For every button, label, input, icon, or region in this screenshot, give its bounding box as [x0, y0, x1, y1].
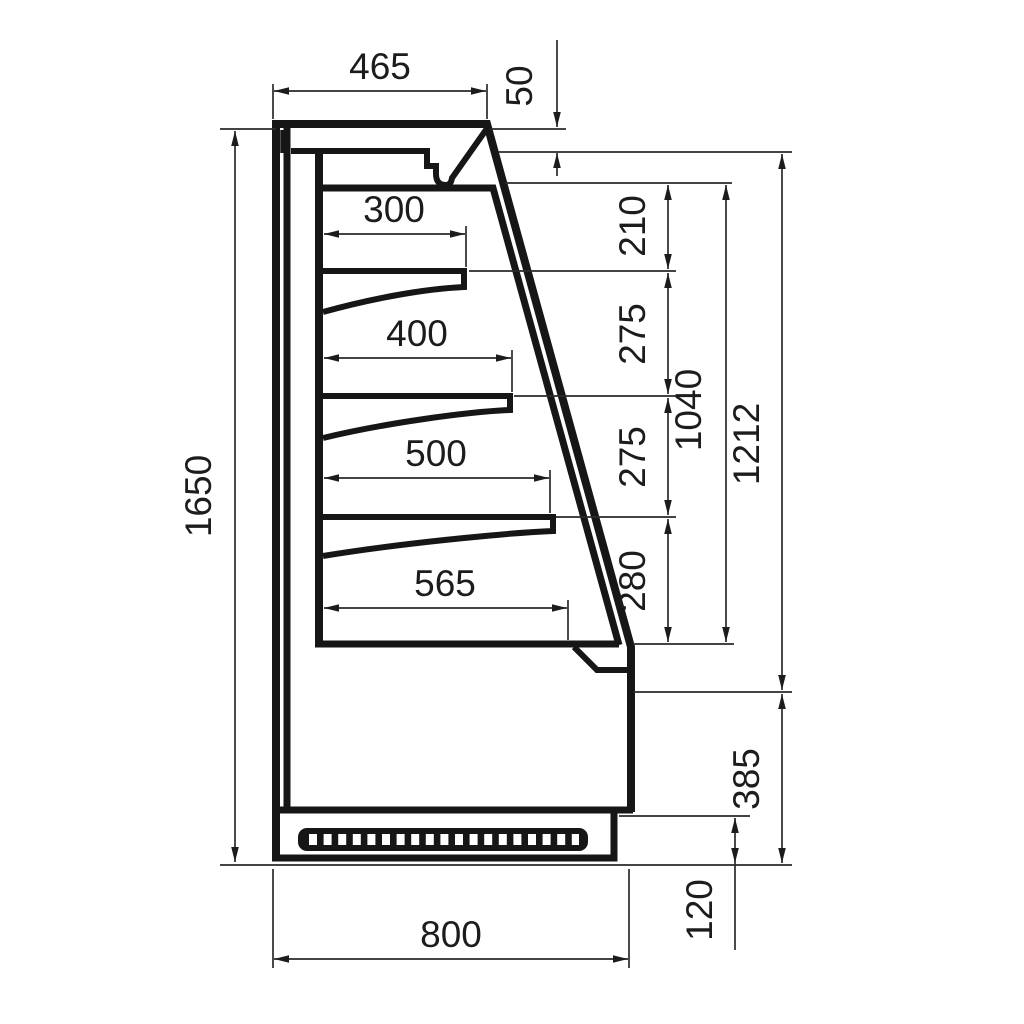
dim-interior-height-label: 1040 [668, 369, 709, 451]
dimensions: 465 50 300 400 500 565 1650 210 275 275 … [178, 40, 782, 959]
dim-total-depth-label: 800 [420, 914, 482, 955]
drawing-page: 465 50 300 400 500 565 1650 210 275 275 … [0, 0, 1024, 1024]
dim-shelf1-depth-label: 300 [363, 189, 425, 230]
dim-gap-upper-label: 275 [612, 303, 653, 365]
dim-gap-bottom-label: 280 [612, 550, 653, 612]
dim-shelf2-depth-label: 400 [386, 313, 448, 354]
dim-plinth-height-label: 120 [679, 879, 720, 941]
dim-base-shelf-depth-label: 565 [414, 563, 476, 604]
dim-gap-top-label: 210 [612, 195, 653, 257]
dim-canopy-height-label: 50 [499, 65, 540, 106]
dim-shelf3-depth-label: 500 [405, 433, 467, 474]
dim-gap-lower-label: 275 [612, 426, 653, 488]
technical-drawing-refrigerated-display-case-side-section: 465 50 300 400 500 565 1650 210 275 275 … [0, 0, 1024, 1024]
front-return-notch [574, 647, 633, 670]
dim-lower-front-label: 385 [726, 748, 767, 810]
shelf-3 [323, 517, 553, 556]
dim-total-height-label: 1650 [178, 455, 219, 537]
dim-front-height-label: 1212 [726, 403, 767, 485]
shelf-1 [323, 271, 464, 312]
shelf-2 [323, 396, 510, 438]
dim-top-depth-label: 465 [349, 46, 411, 87]
